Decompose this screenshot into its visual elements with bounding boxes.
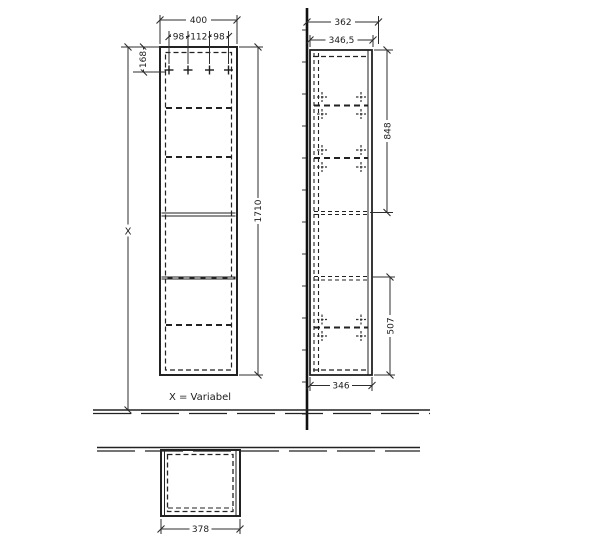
dim-label-width-total: 400 [190,16,207,26]
wall-line-lower [97,448,420,452]
front-view-mounting-holes [165,66,234,75]
dim-label-hole-center: 112 [190,33,207,43]
dim-label-height-total: 1710 [254,199,264,222]
dim-label-hole-right: 98 [213,33,225,43]
dim-label-depth-top: 346,5 [329,36,355,46]
dim-label-hole-left: 98 [173,33,185,43]
plan-view-cabinet [161,450,240,516]
technical-drawing: 400 98 112 98 168 X 1710 X = Variabel 36… [0,0,609,548]
side-view-shelf-pin-holes [317,92,366,341]
dimension-labels: 400 98 112 98 168 X 1710 X = Variabel 36… [122,15,397,536]
front-view-cabinet [160,47,237,375]
dim-label-depth-from-wall: 362 [334,18,351,28]
side-view-dimension-lines [307,16,395,391]
dim-label-top-offset: 168 [139,51,149,68]
side-view-cabinet [310,50,372,375]
floor-line-upper [93,410,430,414]
dim-label-plan-width: 378 [192,525,209,535]
variable-note: X = Variabel [169,392,231,403]
dim-label-hole-span-upper: 848 [384,122,394,139]
dim-label-hole-span-lower: 507 [387,317,397,334]
side-view-wall-line [302,8,307,430]
dim-label-height-variable: X [125,227,132,238]
dim-label-depth-bottom: 346 [332,382,349,392]
